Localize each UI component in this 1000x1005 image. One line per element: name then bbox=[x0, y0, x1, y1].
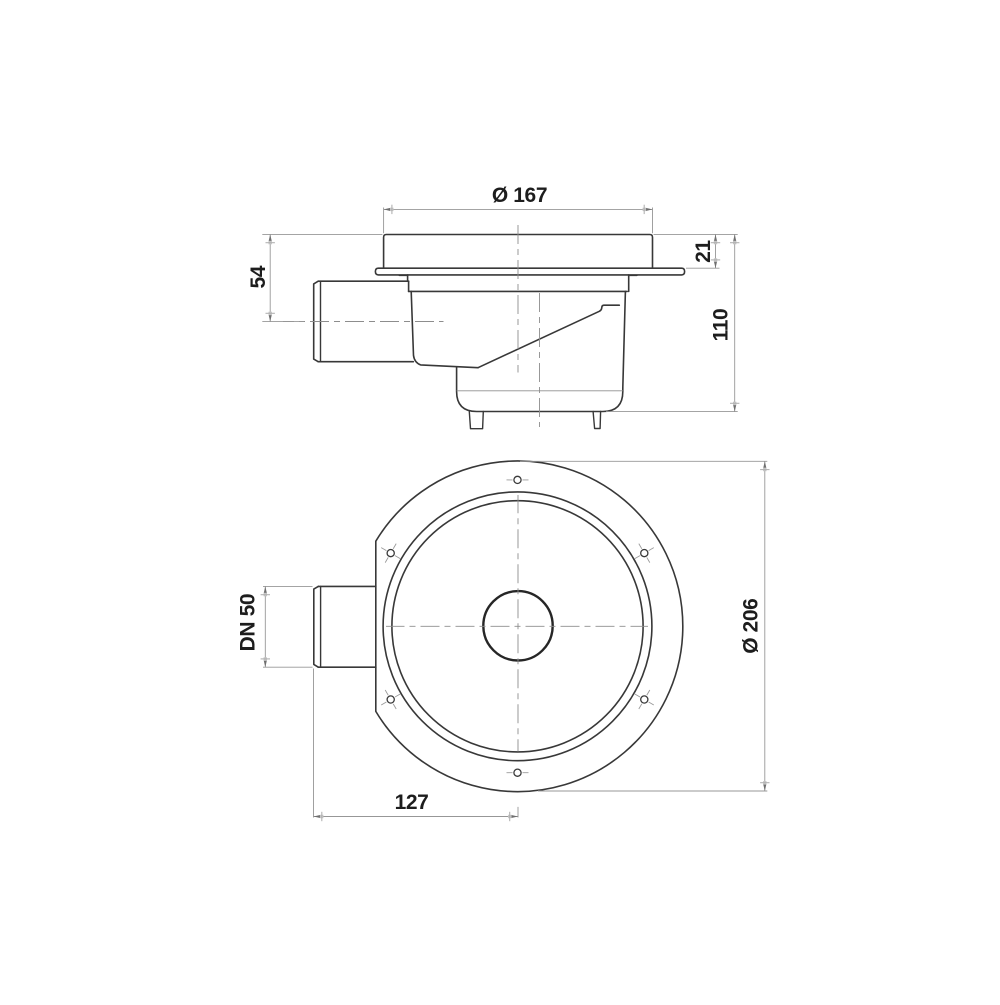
svg-text:Ø 206: Ø 206 bbox=[739, 599, 762, 654]
svg-text:Ø 167: Ø 167 bbox=[492, 184, 547, 207]
svg-text:127: 127 bbox=[395, 791, 429, 814]
svg-text:110: 110 bbox=[709, 309, 732, 342]
svg-text:DN 50: DN 50 bbox=[236, 594, 259, 652]
svg-text:54: 54 bbox=[247, 265, 270, 288]
svg-text:21: 21 bbox=[692, 240, 715, 263]
